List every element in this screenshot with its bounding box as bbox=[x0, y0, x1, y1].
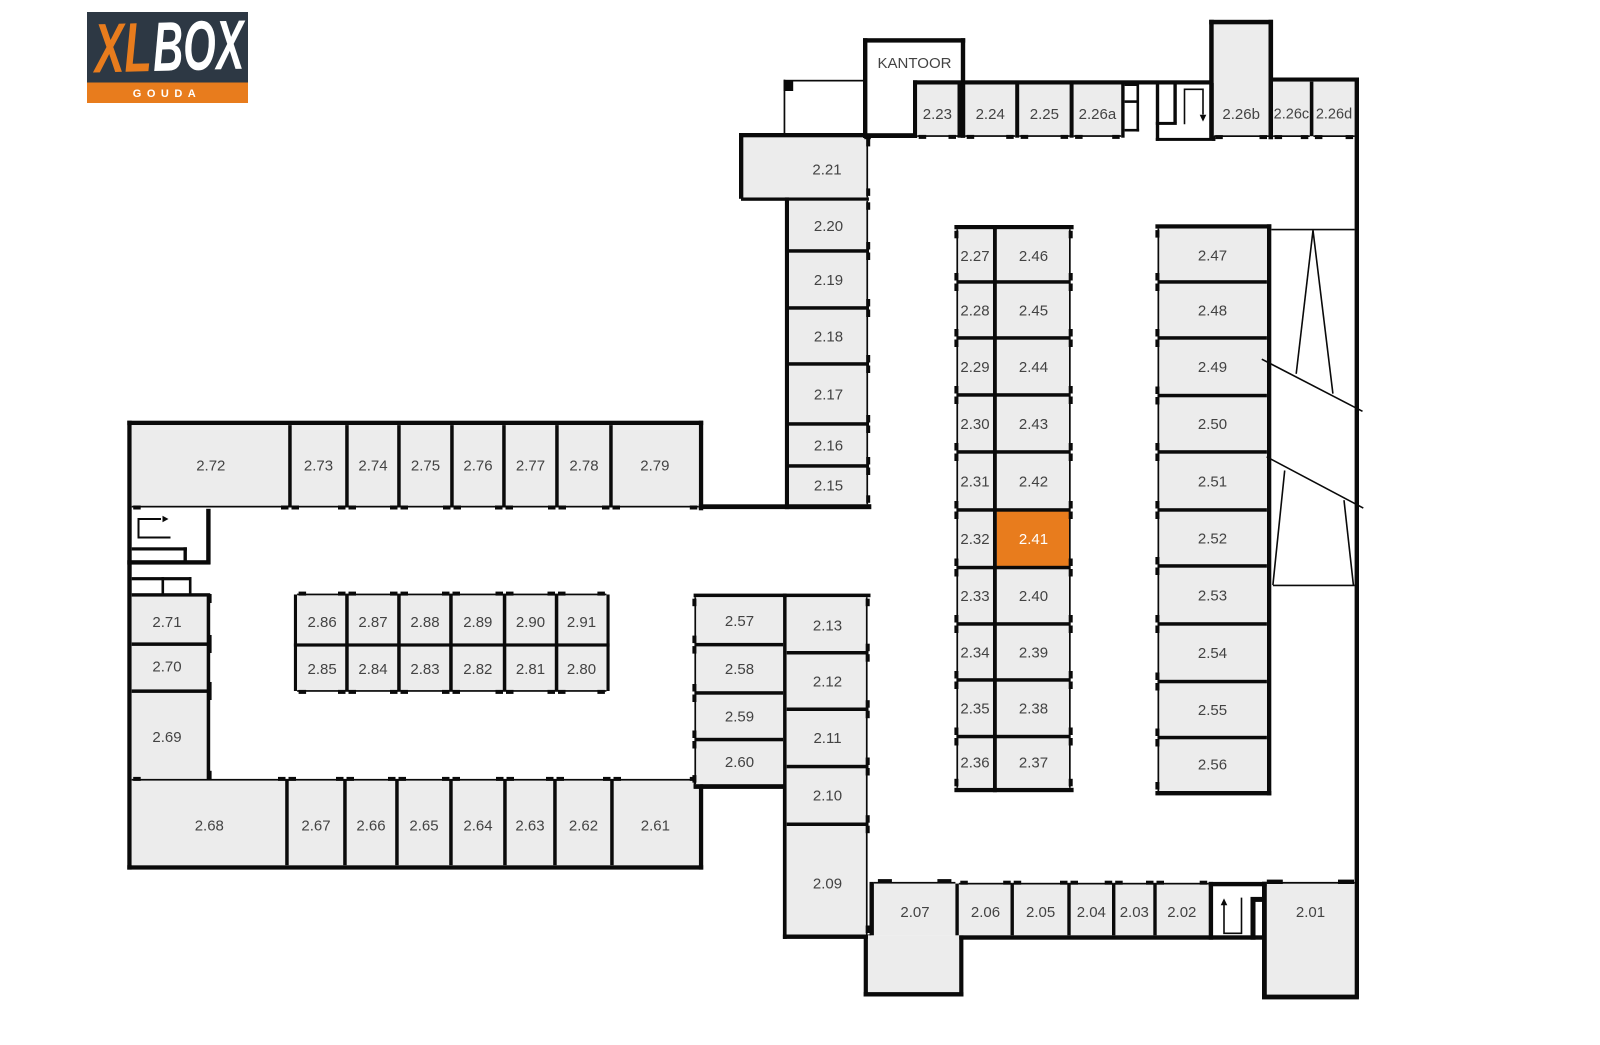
svg-text:2.58: 2.58 bbox=[725, 661, 754, 678]
svg-text:2.54: 2.54 bbox=[1198, 645, 1227, 662]
svg-text:2.85: 2.85 bbox=[307, 661, 336, 678]
svg-text:2.04: 2.04 bbox=[1077, 904, 1106, 921]
svg-text:2.17: 2.17 bbox=[814, 386, 843, 403]
svg-text:2.03: 2.03 bbox=[1120, 904, 1149, 921]
svg-text:2.37: 2.37 bbox=[1019, 754, 1048, 771]
svg-text:2.19: 2.19 bbox=[814, 272, 843, 289]
svg-text:2.79: 2.79 bbox=[640, 457, 669, 474]
svg-text:KANTOOR: KANTOOR bbox=[878, 55, 952, 72]
svg-text:2.05: 2.05 bbox=[1026, 904, 1055, 921]
svg-text:2.31: 2.31 bbox=[960, 473, 989, 490]
svg-text:2.32: 2.32 bbox=[960, 531, 989, 548]
svg-text:2.48: 2.48 bbox=[1198, 302, 1227, 319]
svg-text:2.50: 2.50 bbox=[1198, 416, 1227, 433]
svg-text:2.34: 2.34 bbox=[960, 644, 989, 661]
svg-text:2.88: 2.88 bbox=[410, 614, 439, 631]
svg-text:2.68: 2.68 bbox=[195, 817, 224, 834]
svg-text:2.28: 2.28 bbox=[960, 302, 989, 319]
svg-text:2.09: 2.09 bbox=[813, 875, 842, 892]
svg-text:2.77: 2.77 bbox=[516, 457, 545, 474]
svg-text:2.67: 2.67 bbox=[301, 817, 330, 834]
svg-text:2.59: 2.59 bbox=[725, 708, 754, 725]
svg-text:2.78: 2.78 bbox=[569, 457, 598, 474]
svg-text:2.30: 2.30 bbox=[960, 416, 989, 433]
svg-text:2.72: 2.72 bbox=[196, 457, 225, 474]
svg-text:2.47: 2.47 bbox=[1198, 248, 1227, 265]
svg-text:2.10: 2.10 bbox=[813, 788, 842, 805]
svg-text:2.76: 2.76 bbox=[463, 457, 492, 474]
svg-text:2.75: 2.75 bbox=[411, 457, 440, 474]
svg-text:2.65: 2.65 bbox=[409, 817, 438, 834]
svg-text:2.51: 2.51 bbox=[1198, 473, 1227, 490]
svg-text:2.26c: 2.26c bbox=[1274, 107, 1309, 123]
svg-text:2.26d: 2.26d bbox=[1316, 107, 1352, 123]
svg-text:2.16: 2.16 bbox=[814, 437, 843, 454]
svg-text:2.49: 2.49 bbox=[1198, 359, 1227, 376]
svg-text:2.07: 2.07 bbox=[900, 904, 929, 921]
svg-text:2.43: 2.43 bbox=[1019, 416, 1048, 433]
svg-text:2.70: 2.70 bbox=[152, 658, 181, 675]
svg-text:2.71: 2.71 bbox=[152, 614, 181, 631]
svg-text:2.15: 2.15 bbox=[814, 477, 843, 494]
svg-text:2.40: 2.40 bbox=[1019, 588, 1048, 605]
svg-text:2.89: 2.89 bbox=[463, 614, 492, 631]
svg-text:2.36: 2.36 bbox=[960, 754, 989, 771]
svg-text:2.57: 2.57 bbox=[725, 613, 754, 630]
svg-text:2.81: 2.81 bbox=[516, 661, 545, 678]
svg-text:2.52: 2.52 bbox=[1198, 530, 1227, 547]
svg-text:2.84: 2.84 bbox=[358, 661, 387, 678]
svg-text:2.61: 2.61 bbox=[641, 817, 670, 834]
svg-text:2.86: 2.86 bbox=[307, 614, 336, 631]
svg-text:XL: XL bbox=[91, 8, 153, 88]
svg-text:2.91: 2.91 bbox=[567, 614, 596, 631]
svg-text:2.29: 2.29 bbox=[960, 359, 989, 376]
svg-text:2.12: 2.12 bbox=[813, 673, 842, 690]
svg-text:2.33: 2.33 bbox=[960, 588, 989, 605]
svg-text:BOX: BOX bbox=[152, 6, 248, 86]
svg-text:2.66: 2.66 bbox=[356, 817, 385, 834]
svg-text:2.18: 2.18 bbox=[814, 328, 843, 345]
svg-text:2.01: 2.01 bbox=[1296, 904, 1325, 921]
svg-text:2.63: 2.63 bbox=[515, 817, 544, 834]
svg-text:2.73: 2.73 bbox=[304, 457, 333, 474]
svg-text:2.24: 2.24 bbox=[976, 106, 1005, 123]
svg-text:2.20: 2.20 bbox=[814, 218, 843, 235]
svg-text:2.64: 2.64 bbox=[463, 817, 492, 834]
svg-text:2.90: 2.90 bbox=[516, 614, 545, 631]
svg-text:2.13: 2.13 bbox=[813, 617, 842, 634]
svg-text:2.55: 2.55 bbox=[1198, 702, 1227, 719]
svg-text:2.53: 2.53 bbox=[1198, 587, 1227, 604]
svg-text:2.87: 2.87 bbox=[358, 614, 387, 631]
svg-text:2.60: 2.60 bbox=[725, 754, 754, 771]
svg-text:2.46: 2.46 bbox=[1019, 248, 1048, 265]
svg-text:2.35: 2.35 bbox=[960, 700, 989, 717]
svg-text:2.74: 2.74 bbox=[358, 457, 387, 474]
svg-text:2.83: 2.83 bbox=[410, 661, 439, 678]
svg-text:2.26a: 2.26a bbox=[1079, 106, 1117, 123]
svg-text:2.69: 2.69 bbox=[152, 729, 181, 746]
svg-text:2.62: 2.62 bbox=[569, 817, 598, 834]
svg-text:2.39: 2.39 bbox=[1019, 644, 1048, 661]
svg-text:2.42: 2.42 bbox=[1019, 473, 1048, 490]
svg-text:2.23: 2.23 bbox=[923, 106, 952, 123]
svg-text:2.80: 2.80 bbox=[567, 661, 596, 678]
svg-text:2.25: 2.25 bbox=[1030, 106, 1059, 123]
svg-text:2.21: 2.21 bbox=[812, 161, 841, 178]
svg-text:2.38: 2.38 bbox=[1019, 700, 1048, 717]
svg-text:2.44: 2.44 bbox=[1019, 359, 1048, 376]
svg-text:GOUDA: GOUDA bbox=[133, 88, 201, 100]
svg-text:2.26b: 2.26b bbox=[1222, 106, 1260, 123]
svg-text:2.02: 2.02 bbox=[1167, 904, 1196, 921]
svg-text:2.06: 2.06 bbox=[971, 904, 1000, 921]
svg-text:2.56: 2.56 bbox=[1198, 756, 1227, 773]
svg-text:2.27: 2.27 bbox=[960, 248, 989, 265]
svg-text:2.82: 2.82 bbox=[463, 661, 492, 678]
svg-text:2.45: 2.45 bbox=[1019, 302, 1048, 319]
svg-text:2.11: 2.11 bbox=[813, 730, 841, 747]
svg-text:2.41: 2.41 bbox=[1019, 531, 1048, 548]
